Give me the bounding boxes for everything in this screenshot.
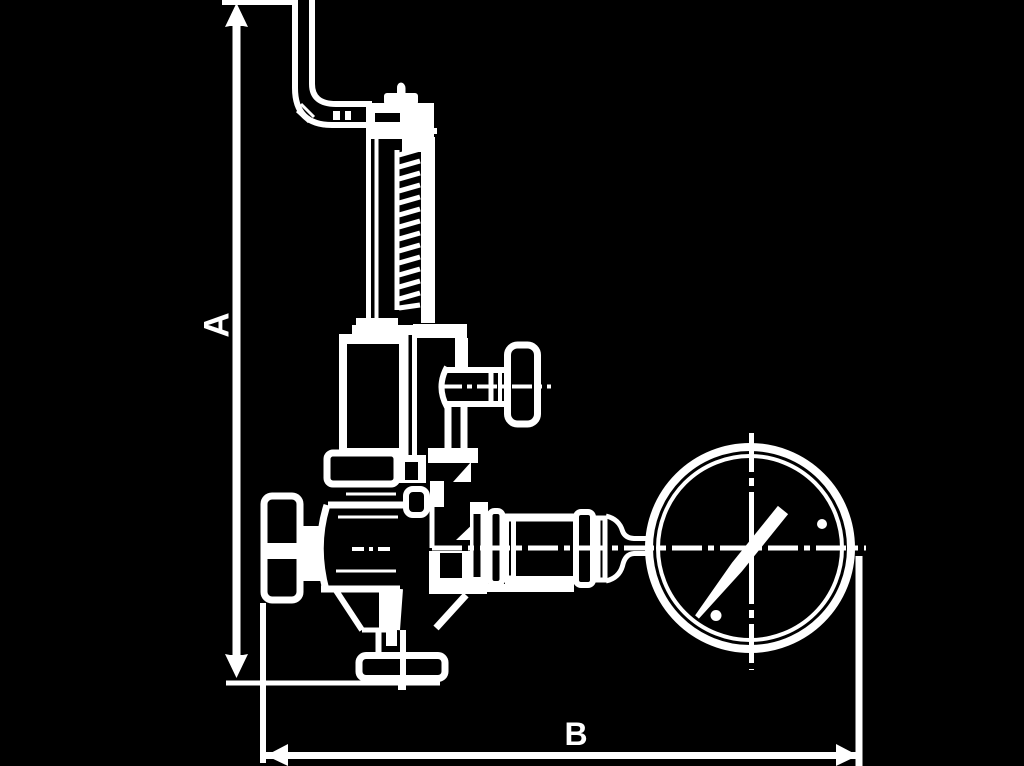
svg-text:B: B <box>564 716 587 752</box>
svg-text:A: A <box>198 312 237 337</box>
